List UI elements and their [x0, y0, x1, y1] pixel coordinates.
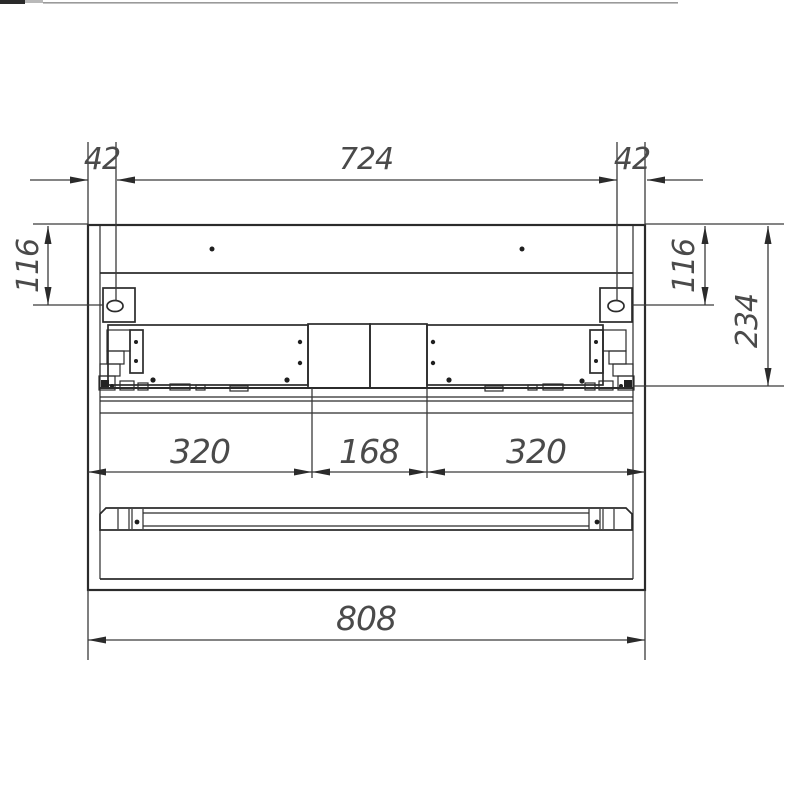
drawer-back-left	[108, 325, 308, 385]
dim-label-right-234: 234	[730, 294, 765, 348]
dim-label-bottom-right-320: 320	[506, 432, 566, 471]
drawer-slide-left	[99, 330, 248, 391]
dim-label-bottom-center-168: 168	[339, 432, 399, 471]
hanging-bracket-right	[600, 288, 632, 322]
dimension-top: 42 724 42	[30, 142, 703, 301]
vanity-cabinet-drawing: 42 724 42 116 116 234	[0, 0, 800, 800]
technical-drawing-page: 42 724 42 116 116 234	[0, 0, 800, 800]
screenshot-edge-artifact	[0, 0, 678, 4]
hanging-bracket-left	[103, 288, 135, 322]
dimension-left-116: 116	[11, 224, 103, 305]
slide-rail-lines	[100, 388, 633, 413]
dimension-overall-808: 808	[88, 590, 645, 660]
dim-label-bottom-left-320: 320	[170, 432, 230, 471]
bottom-drawer-rail	[100, 508, 632, 530]
dim-label-overall-808: 808	[336, 599, 396, 638]
dim-label-top-left: 42	[84, 142, 120, 177]
dim-label-top-span: 724	[339, 142, 393, 177]
top-rail-screw-holes	[210, 247, 525, 252]
center-partition-panels	[308, 324, 427, 388]
rail-screw-right	[595, 520, 600, 525]
drawer-slide-right	[485, 330, 634, 391]
drawer-back-right	[427, 325, 603, 385]
mounting-hole-right	[608, 301, 624, 312]
dim-label-right-116: 116	[667, 239, 702, 293]
rail-screw-left	[135, 520, 140, 525]
dim-label-left-116: 116	[11, 239, 46, 293]
cabinet-outline	[88, 225, 645, 590]
mounting-hole-left	[107, 301, 123, 312]
dim-label-top-right: 42	[614, 142, 650, 177]
